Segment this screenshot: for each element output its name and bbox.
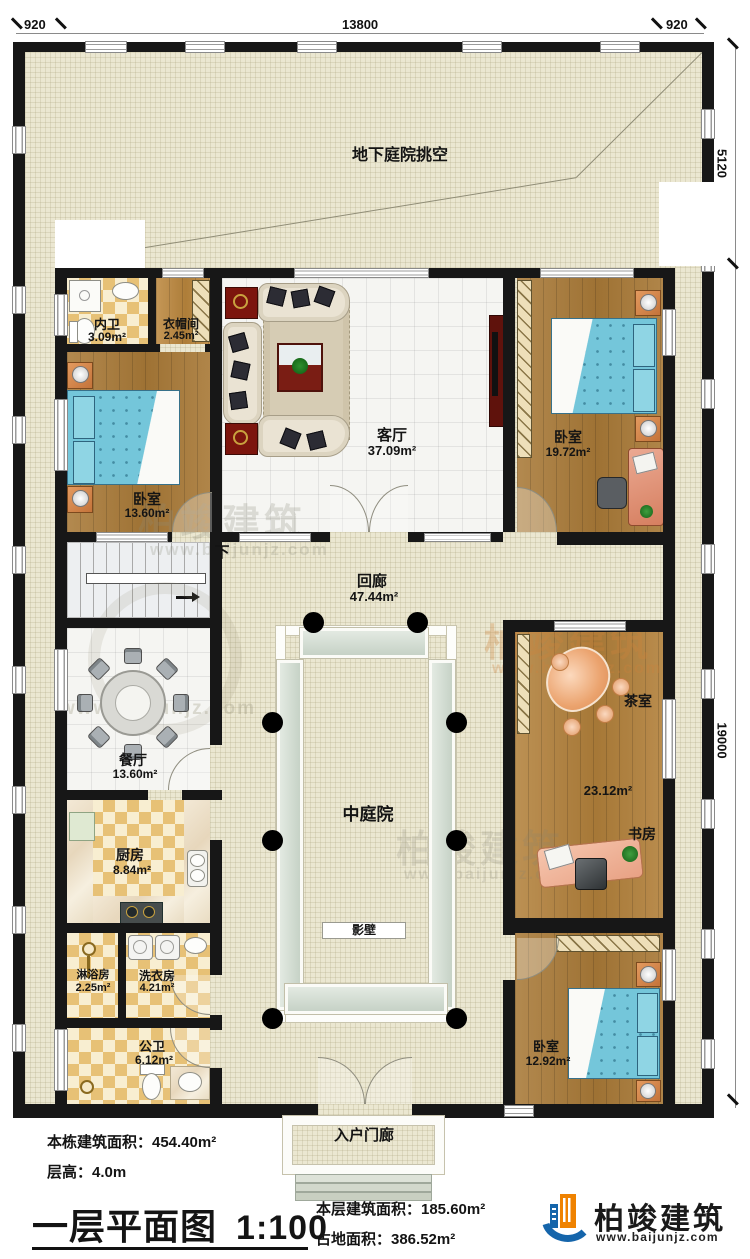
bed-pillow xyxy=(73,396,95,439)
column xyxy=(303,612,324,633)
dimension-tick xyxy=(727,257,739,269)
dimension-tick xyxy=(695,17,707,29)
plan-title: 一层平面图 1:100 xyxy=(32,1198,328,1250)
pillow xyxy=(229,391,248,410)
closet xyxy=(556,935,660,952)
dimension-tick xyxy=(727,37,739,49)
window xyxy=(13,127,25,153)
window xyxy=(702,670,714,698)
label-bed-bottom: 卧室 xyxy=(533,1040,559,1054)
wall xyxy=(557,532,663,545)
bed-pillow xyxy=(633,324,655,367)
label-dining: 餐厅 xyxy=(119,753,147,768)
window xyxy=(663,950,675,1000)
window xyxy=(13,787,25,813)
area-kitchen: 8.84m² xyxy=(113,864,151,877)
label-courtyard: 中庭院 xyxy=(343,806,394,824)
tea-stool xyxy=(551,653,569,671)
entry-porch xyxy=(283,1116,444,1174)
label-stairs-down: 下 xyxy=(214,545,229,561)
window xyxy=(13,1025,25,1051)
dim-920-left: 920 xyxy=(24,17,46,32)
dimension-tick xyxy=(11,17,23,29)
floor-height: 层高：4.0m xyxy=(47,1161,126,1182)
label-pubbath: 公卫 xyxy=(139,1040,165,1054)
glass-bridge-bottom xyxy=(285,984,447,1014)
shower-head xyxy=(80,1080,94,1094)
stair-arrow xyxy=(176,596,192,599)
window xyxy=(663,310,675,355)
wall xyxy=(503,620,515,935)
sink xyxy=(184,937,207,954)
window xyxy=(702,1040,714,1068)
brand-url: www.baijunjz.com xyxy=(596,1230,719,1244)
window xyxy=(702,930,714,958)
area-dining: 13.60m² xyxy=(113,768,158,781)
floor-plan: 920 13800 920 5120 19000 柏竣建筑 www.baijun… xyxy=(0,0,750,1259)
window xyxy=(13,907,25,933)
lamp xyxy=(640,420,657,437)
pillow xyxy=(230,360,250,380)
void-notch-right xyxy=(659,182,716,266)
sink-basin xyxy=(190,869,205,882)
area-tea-study: 23.12m² xyxy=(584,784,632,798)
window xyxy=(505,1106,533,1116)
plan-title-text: 一层平面图 xyxy=(32,1206,217,1247)
wall xyxy=(182,790,210,800)
desk-chair xyxy=(597,477,627,509)
stair-arrow-head xyxy=(192,592,200,602)
dining-table-center xyxy=(115,685,151,721)
label-living: 客厅 xyxy=(377,428,407,444)
column xyxy=(262,712,283,733)
sink xyxy=(112,282,139,300)
bed-pillow xyxy=(637,1036,658,1076)
computer xyxy=(575,858,607,890)
window xyxy=(86,42,126,52)
toilet xyxy=(142,1073,161,1100)
wall xyxy=(503,980,515,1104)
label-porch: 入户门廊 xyxy=(334,1128,394,1144)
wall xyxy=(55,790,148,800)
bed-duvet xyxy=(135,391,179,484)
wall xyxy=(55,344,160,352)
window xyxy=(463,42,501,52)
glass-bridge-top xyxy=(300,628,428,658)
bed-pillow xyxy=(637,993,658,1033)
wall xyxy=(55,1018,210,1028)
bed-pillow xyxy=(633,369,655,412)
column xyxy=(446,712,467,733)
label-bed-left: 卧室 xyxy=(133,492,161,507)
window xyxy=(13,417,25,443)
column xyxy=(446,830,467,851)
side-table-lamp xyxy=(233,430,248,445)
window xyxy=(97,533,167,541)
wall xyxy=(503,278,515,532)
lamp xyxy=(640,294,657,311)
sink xyxy=(178,1072,202,1092)
wall xyxy=(210,1015,222,1030)
window xyxy=(55,295,67,335)
porch-step xyxy=(295,1174,432,1183)
pillow xyxy=(291,289,311,309)
label-shower: 淋浴房 xyxy=(77,970,110,982)
washer-door xyxy=(133,940,147,954)
label-laundry: 洗衣房 xyxy=(139,970,175,983)
window xyxy=(186,42,224,52)
window xyxy=(702,800,714,828)
wall xyxy=(503,918,672,933)
area-bed-bottom: 12.92m² xyxy=(526,1055,571,1068)
stove-burner xyxy=(143,906,155,918)
area-neiwei: 3.09m² xyxy=(88,331,126,344)
wall xyxy=(210,1068,222,1104)
courtyard-curb xyxy=(276,1013,456,1022)
logo-mark-svg xyxy=(540,1190,588,1246)
lamp xyxy=(640,1083,656,1099)
land-area: 占地面积：386.52m² xyxy=(316,1228,455,1249)
dim-5120: 5120 xyxy=(715,134,730,194)
outer-wall-left xyxy=(13,42,25,1118)
wall xyxy=(55,923,210,933)
label-cloak: 衣帽间 xyxy=(163,318,199,331)
window xyxy=(55,400,67,470)
title-underline xyxy=(32,1247,308,1250)
area-pubbath: 6.12m² xyxy=(135,1054,173,1067)
dining-chair xyxy=(77,694,93,712)
window xyxy=(541,269,633,277)
window xyxy=(425,534,490,541)
wall xyxy=(210,790,222,800)
side-table-lamp xyxy=(233,294,248,309)
column xyxy=(446,1008,467,1029)
window xyxy=(163,269,203,277)
window xyxy=(55,1030,67,1090)
wall xyxy=(55,618,210,628)
window xyxy=(13,287,25,313)
dim-13800: 13800 xyxy=(342,17,378,32)
window xyxy=(663,700,675,778)
area-corridor: 47.44m² xyxy=(350,590,398,604)
fridge xyxy=(69,812,95,841)
area-shower: 2.25m² xyxy=(76,983,111,995)
desk-plant xyxy=(640,505,653,518)
label-kitchen: 厨房 xyxy=(116,848,144,863)
window xyxy=(240,534,310,541)
area-living: 37.09m² xyxy=(368,444,416,458)
wall xyxy=(118,933,126,1018)
dining-chair xyxy=(124,648,142,664)
column xyxy=(262,1008,283,1029)
label-study: 书房 xyxy=(628,827,656,842)
dim-19000: 19000 xyxy=(715,711,730,771)
label-bed-right: 卧室 xyxy=(554,430,582,445)
bed-pillow xyxy=(73,441,95,484)
wall xyxy=(148,278,156,344)
dimension-tick xyxy=(727,1093,739,1105)
right-dimension-line xyxy=(735,45,736,1108)
tea-stool xyxy=(596,705,614,723)
sofa-bottom xyxy=(258,415,350,457)
window xyxy=(13,667,25,693)
table-plant xyxy=(292,358,308,374)
tea-room-cabinet xyxy=(517,634,530,734)
window xyxy=(555,622,625,630)
dim-920-right: 920 xyxy=(666,17,688,32)
lamp xyxy=(72,490,89,507)
lamp xyxy=(72,366,89,383)
label-tea: 茶室 xyxy=(624,694,652,709)
window xyxy=(298,42,336,52)
dimension-tick xyxy=(651,17,663,29)
bed-duvet xyxy=(552,319,594,413)
column xyxy=(262,830,283,851)
window xyxy=(13,547,25,573)
washer-door xyxy=(160,940,174,954)
shower-head xyxy=(82,942,96,956)
sink-basin xyxy=(190,854,205,867)
plant xyxy=(622,846,638,862)
tv xyxy=(492,332,498,396)
shower-drain xyxy=(79,290,90,301)
dining-chair xyxy=(173,694,189,712)
area-cloak: 2.45m² xyxy=(164,331,199,343)
plan-scale: 1:100 xyxy=(236,1209,328,1247)
screen-wall: 影壁 xyxy=(322,922,406,939)
window xyxy=(702,110,714,138)
lamp xyxy=(640,966,657,983)
dimension-tick xyxy=(55,17,67,29)
stair-handrail xyxy=(86,573,206,584)
top-dimension-line xyxy=(16,33,704,34)
total-building-area: 本栋建筑面积：454.40m² xyxy=(47,1131,216,1152)
window xyxy=(55,650,67,710)
area-laundry: 4.21m² xyxy=(140,983,175,995)
window xyxy=(601,42,639,52)
label-void: 地下庭院挑空 xyxy=(352,148,448,165)
tea-stool xyxy=(563,718,581,736)
toilet-tank xyxy=(69,321,78,343)
area-bed-right: 19.72m² xyxy=(546,446,591,459)
logo-mark xyxy=(540,1190,588,1246)
column xyxy=(407,612,428,633)
window xyxy=(295,269,428,277)
bed-duvet xyxy=(569,989,605,1078)
floor-area: 本层建筑面积：185.60m² xyxy=(316,1198,485,1219)
wardrobe xyxy=(517,280,532,458)
label-corridor: 回廊 xyxy=(357,574,387,590)
area-bed-left: 13.60m² xyxy=(125,507,170,520)
wall xyxy=(210,840,222,975)
window xyxy=(702,545,714,573)
porch-step xyxy=(295,1183,432,1192)
window xyxy=(702,380,714,408)
stove-burner xyxy=(126,906,138,918)
void-notch-left xyxy=(55,220,145,268)
